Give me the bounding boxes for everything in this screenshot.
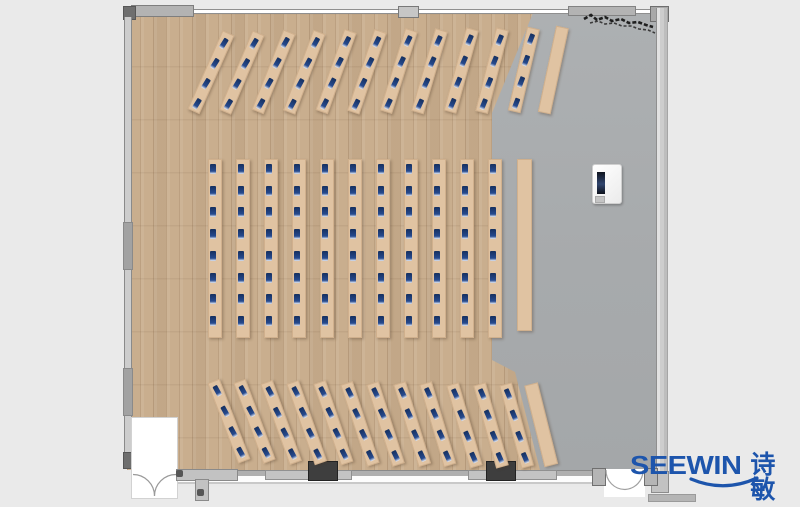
laptop-icon xyxy=(332,428,341,440)
laptop-icon xyxy=(378,316,384,326)
desk xyxy=(379,28,417,114)
laptop-icon xyxy=(238,385,248,397)
laptop-icon xyxy=(378,408,387,420)
laptop-icon xyxy=(322,186,328,196)
laptop-icon xyxy=(210,164,216,174)
desk xyxy=(460,159,474,338)
laptop-icon xyxy=(266,164,272,174)
laptop-icon xyxy=(495,452,504,464)
laptop-icon xyxy=(322,251,328,261)
laptop-icon xyxy=(325,407,334,419)
laptop-icon xyxy=(490,164,496,174)
laptop-icon xyxy=(263,78,273,90)
laptop-icon xyxy=(311,36,321,48)
laptop-icon xyxy=(358,77,367,89)
laptop-icon xyxy=(238,207,244,217)
laptop-icon xyxy=(434,251,440,261)
laptop-icon xyxy=(238,316,244,326)
desk xyxy=(404,159,418,338)
desk-layer xyxy=(0,0,800,507)
laptop-icon xyxy=(232,78,242,90)
laptop-icon xyxy=(238,186,244,196)
laptop-icon xyxy=(428,56,437,68)
laptop-icon xyxy=(453,77,462,89)
laptop-icon xyxy=(240,57,250,69)
laptop-icon xyxy=(451,388,460,400)
laptop-icon xyxy=(483,409,492,421)
laptop-icon xyxy=(272,406,282,418)
laptop-icon xyxy=(322,207,328,217)
laptop-icon xyxy=(406,316,412,326)
brand-cjk-characters: 诗敏 xyxy=(750,453,800,503)
laptop-icon xyxy=(365,56,374,68)
laptop-icon xyxy=(378,207,384,217)
laptop-icon xyxy=(516,76,525,88)
laptop-icon xyxy=(210,186,216,196)
laptop-icon xyxy=(406,251,412,261)
desk xyxy=(236,159,250,338)
laptop-icon xyxy=(238,251,244,261)
laptop-icon xyxy=(322,294,328,304)
desk xyxy=(292,159,306,338)
laptop-icon xyxy=(398,387,407,399)
laptop-icon xyxy=(191,98,201,110)
laptop-icon xyxy=(365,449,374,461)
laptop-icon xyxy=(228,426,238,438)
laptop-icon xyxy=(210,294,216,304)
laptop-icon xyxy=(477,388,486,400)
laptop-icon xyxy=(457,409,466,421)
laptop-icon xyxy=(521,452,530,464)
laptop-icon xyxy=(526,33,535,45)
laptop-icon xyxy=(294,316,300,326)
laptop-icon xyxy=(266,273,272,283)
laptop-icon xyxy=(434,229,440,239)
laptop-icon xyxy=(341,36,351,48)
laptop-icon xyxy=(350,251,356,261)
laptop-icon xyxy=(294,251,300,261)
laptop-icon xyxy=(292,386,301,398)
laptop-icon xyxy=(462,294,468,304)
laptop-icon xyxy=(378,251,384,261)
laptop-icon xyxy=(238,273,244,283)
laptop-icon xyxy=(463,430,472,442)
laptop-icon xyxy=(490,229,496,239)
desk xyxy=(475,27,509,114)
desk xyxy=(432,159,446,338)
laptop-icon xyxy=(322,164,328,174)
laptop-icon xyxy=(212,385,222,397)
laptop-icon xyxy=(431,408,440,420)
laptop-icon xyxy=(327,77,337,89)
laptop-icon xyxy=(462,164,468,174)
laptop-icon xyxy=(210,316,216,326)
laptop-icon xyxy=(350,294,356,304)
vending-machine-base xyxy=(595,196,605,203)
laptop-icon xyxy=(351,98,360,110)
laptop-icon xyxy=(210,207,216,217)
laptop-icon xyxy=(200,78,210,90)
laptop-icon xyxy=(434,273,440,283)
laptop-icon xyxy=(210,273,216,283)
laptop-icon xyxy=(521,55,530,67)
laptop-icon xyxy=(462,316,468,326)
laptop-icon xyxy=(318,386,327,398)
laptop-icon xyxy=(266,186,272,196)
laptop-icon xyxy=(299,407,308,419)
laptop-icon xyxy=(511,97,520,109)
laptop-icon xyxy=(396,56,405,68)
desk xyxy=(488,159,502,338)
wall-post-icon xyxy=(176,470,183,477)
laptop-icon xyxy=(421,77,430,89)
laptop-icon xyxy=(434,316,440,326)
laptop-icon xyxy=(272,57,282,69)
laptop-icon xyxy=(350,273,356,283)
laptop-icon xyxy=(294,207,300,217)
laptop-icon xyxy=(280,427,290,439)
laptop-icon xyxy=(391,450,400,462)
desk xyxy=(320,159,334,338)
laptop-icon xyxy=(220,405,230,417)
laptop-icon xyxy=(266,251,272,261)
laptop-icon xyxy=(434,207,440,217)
laptop-icon xyxy=(345,386,354,398)
desk xyxy=(264,159,278,338)
laptop-icon xyxy=(490,207,496,217)
laptop-icon xyxy=(266,316,272,326)
laptop-icon xyxy=(294,273,300,283)
laptop-icon xyxy=(339,449,348,461)
laptop-icon xyxy=(406,273,412,283)
laptop-icon xyxy=(490,186,496,196)
laptop-icon xyxy=(287,447,297,459)
laptop-icon xyxy=(406,207,412,217)
laptop-icon xyxy=(378,294,384,304)
laptop-icon xyxy=(352,407,361,419)
laptop-icon xyxy=(350,316,356,326)
laptop-icon xyxy=(238,229,244,239)
vending-machine xyxy=(592,164,622,204)
laptop-icon xyxy=(443,451,452,463)
laptop-icon xyxy=(236,446,246,458)
laptop-icon xyxy=(266,207,272,217)
laptop-icon xyxy=(424,387,433,399)
laptop-icon xyxy=(434,294,440,304)
laptop-icon xyxy=(210,251,216,261)
brand-wordmark: SEEWIN xyxy=(630,453,741,479)
laptop-icon xyxy=(406,229,412,239)
laptop-icon xyxy=(322,273,328,283)
laptop-icon xyxy=(490,251,496,261)
laptop-icon xyxy=(434,186,440,196)
laptop-icon xyxy=(406,164,412,174)
laptop-icon xyxy=(462,273,468,283)
laptop-icon xyxy=(489,430,498,442)
laptop-icon xyxy=(495,34,504,46)
laptop-icon xyxy=(434,164,440,174)
wall-post-icon xyxy=(197,489,204,496)
desk xyxy=(443,27,478,113)
laptop-icon xyxy=(313,448,322,460)
laptop-icon xyxy=(218,38,228,50)
laptop-icon xyxy=(378,164,384,174)
laptop-icon xyxy=(404,408,413,420)
laptop-icon xyxy=(490,273,496,283)
laptop-icon xyxy=(411,429,420,441)
laptop-icon xyxy=(294,186,300,196)
side-table xyxy=(537,26,568,115)
laptop-icon xyxy=(504,388,513,400)
laptop-icon xyxy=(322,229,328,239)
laptop-icon xyxy=(249,37,259,49)
desk xyxy=(348,159,362,338)
desk xyxy=(376,159,390,338)
laptop-icon xyxy=(254,426,264,438)
laptop-icon xyxy=(385,429,394,441)
laptop-icon xyxy=(485,76,494,88)
laptop-icon xyxy=(417,450,426,462)
laptop-icon xyxy=(266,229,272,239)
laptop-icon xyxy=(490,55,499,67)
laptop-icon xyxy=(459,55,468,67)
laptop-icon xyxy=(415,98,424,110)
brand-logo: SEEWIN 诗敏 xyxy=(630,452,800,503)
laptop-icon xyxy=(223,98,233,110)
laptop-icon xyxy=(294,229,300,239)
laptop-icon xyxy=(378,186,384,196)
laptop-icon xyxy=(358,428,367,440)
desk xyxy=(411,28,448,114)
laptop-icon xyxy=(434,34,443,46)
laptop-icon xyxy=(306,427,315,439)
laptop-icon xyxy=(462,251,468,261)
laptop-icon xyxy=(210,229,216,239)
laptop-icon xyxy=(371,387,380,399)
laptop-icon xyxy=(255,98,265,110)
laptop-icon xyxy=(262,447,272,459)
laptop-icon xyxy=(406,186,412,196)
laptop-icon xyxy=(390,77,399,89)
laptop-icon xyxy=(378,229,384,239)
desk xyxy=(507,27,539,114)
laptop-icon xyxy=(383,98,392,110)
laptop-icon xyxy=(334,57,344,69)
laptop-icon xyxy=(447,98,456,110)
laptop-icon xyxy=(350,164,356,174)
laptop-icon xyxy=(462,186,468,196)
laptop-icon xyxy=(295,77,305,89)
laptop-icon xyxy=(322,316,328,326)
laptop-icon xyxy=(238,294,244,304)
laptop-icon xyxy=(287,98,297,110)
laptop-icon xyxy=(462,207,468,217)
laptop-icon xyxy=(437,430,446,442)
laptop-icon xyxy=(490,316,496,326)
laptop-icon xyxy=(479,98,488,110)
laptop-icon xyxy=(462,229,468,239)
laptop-icon xyxy=(209,58,219,70)
laptop-icon xyxy=(294,164,300,174)
laptop-icon xyxy=(469,451,478,463)
laptop-icon xyxy=(294,294,300,304)
laptop-icon xyxy=(303,57,313,69)
side-table xyxy=(517,159,532,331)
laptop-icon xyxy=(403,35,412,47)
laptop-icon xyxy=(350,229,356,239)
laptop-icon xyxy=(372,35,381,47)
double-door-bottom-left xyxy=(131,417,178,499)
laptop-icon xyxy=(515,431,524,443)
laptop-icon xyxy=(280,37,290,49)
laptop-icon xyxy=(350,186,356,196)
laptop-icon xyxy=(238,164,244,174)
laptop-icon xyxy=(265,385,275,397)
laptop-icon xyxy=(266,294,272,304)
laptop-icon xyxy=(350,207,356,217)
floorplan-screenshot: { "branding": { "brand": "SEEWIN", "bran… xyxy=(0,0,800,507)
desk xyxy=(208,159,222,338)
laptop-icon xyxy=(246,406,256,418)
laptop-icon xyxy=(490,294,496,304)
laptop-icon xyxy=(319,98,329,110)
door-post-icon xyxy=(592,468,606,486)
vending-machine-screen xyxy=(597,172,605,194)
laptop-icon xyxy=(406,294,412,304)
laptop-icon xyxy=(465,34,474,46)
laptop-icon xyxy=(510,410,519,422)
laptop-icon xyxy=(378,273,384,283)
